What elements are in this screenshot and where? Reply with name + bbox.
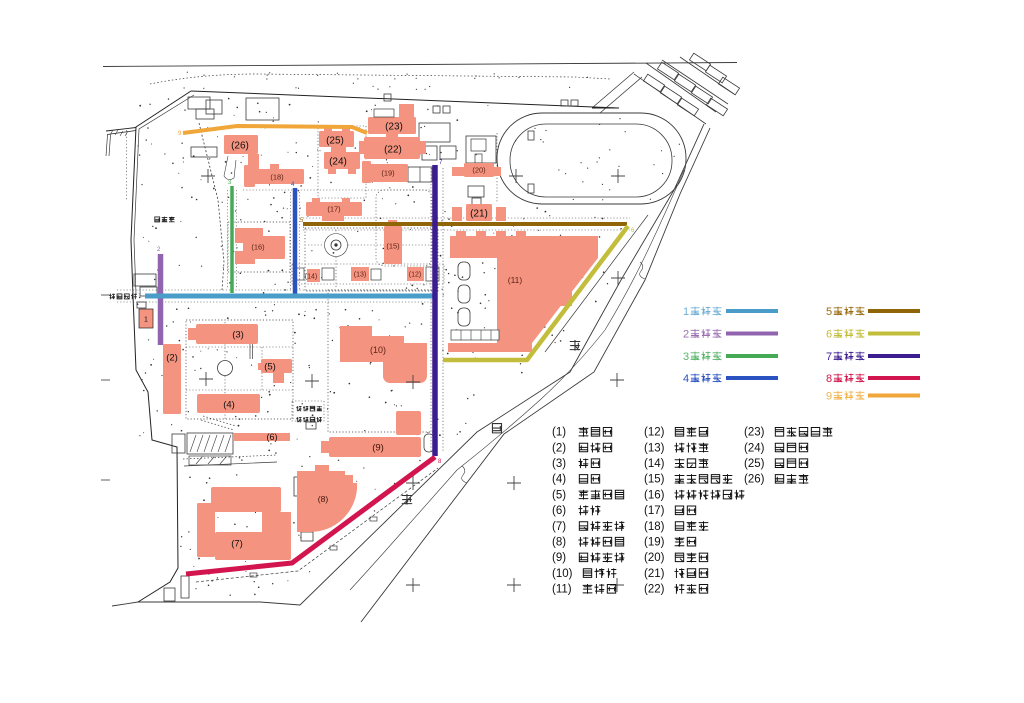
svg-text:(8): (8) [318,494,329,504]
svg-text:(25): (25) [326,136,344,147]
svg-text:7: 7 [826,351,832,363]
svg-text:(8): (8) [552,537,566,549]
svg-text:(17): (17) [644,505,665,517]
svg-text:(24): (24) [744,442,765,454]
svg-text:(5): (5) [264,361,276,372]
svg-text:(3): (3) [552,458,566,470]
svg-text:(23): (23) [385,122,403,133]
svg-text:(4): (4) [223,399,235,410]
svg-text:3: 3 [683,351,689,363]
svg-text:(19): (19) [644,537,665,549]
svg-text:(4): (4) [552,474,566,486]
svg-text:(17): (17) [327,205,341,214]
svg-text:(5): (5) [552,489,566,501]
svg-text:4: 4 [683,373,689,385]
svg-text:(20): (20) [644,552,665,564]
svg-text:(13): (13) [354,272,366,279]
svg-text:(14): (14) [305,274,317,281]
svg-text:(11): (11) [552,584,572,596]
svg-text:(26): (26) [744,474,765,486]
svg-text:(23): (23) [744,427,765,439]
svg-text:(2): (2) [166,352,178,363]
svg-text:(16): (16) [644,489,665,501]
svg-text:(18): (18) [644,521,665,533]
svg-text:(3): (3) [232,329,244,340]
svg-text:(10): (10) [370,345,386,355]
svg-text:(21): (21) [644,568,665,580]
svg-text:8: 8 [826,373,832,385]
svg-text:(12): (12) [644,427,665,439]
svg-text:(19): (19) [381,169,395,178]
svg-text:9: 9 [826,391,832,403]
svg-text:(12): (12) [409,272,421,279]
svg-text:(10): (10) [552,568,573,580]
svg-text:(6): (6) [267,432,278,442]
svg-text:(26): (26) [231,141,249,152]
svg-text:(16): (16) [251,243,265,252]
svg-text:(7): (7) [552,521,566,533]
svg-text:(21): (21) [470,209,488,220]
svg-text:2: 2 [683,329,689,341]
svg-text:(13): (13) [644,442,665,454]
svg-text:(2): (2) [552,442,566,454]
svg-text:(1): (1) [552,427,566,439]
svg-text:(22): (22) [384,145,402,156]
svg-text:6: 6 [826,329,832,341]
svg-text:(15): (15) [644,474,665,486]
svg-text:(14): (14) [644,458,665,470]
svg-text:(25): (25) [744,458,765,470]
svg-text:(22): (22) [644,584,665,596]
svg-text:(18): (18) [270,173,284,182]
svg-text:(9): (9) [372,442,384,453]
svg-text:(24): (24) [329,157,347,168]
svg-text:1: 1 [683,306,689,318]
svg-text:5: 5 [826,306,832,318]
svg-text:(11): (11) [508,275,523,285]
svg-text:(15): (15) [386,242,400,251]
svg-text:(6): (6) [552,505,566,517]
svg-text:(20): (20) [472,166,486,175]
svg-text:(7): (7) [231,538,243,549]
svg-text:(9): (9) [552,552,566,564]
svg-text:1: 1 [144,317,148,324]
